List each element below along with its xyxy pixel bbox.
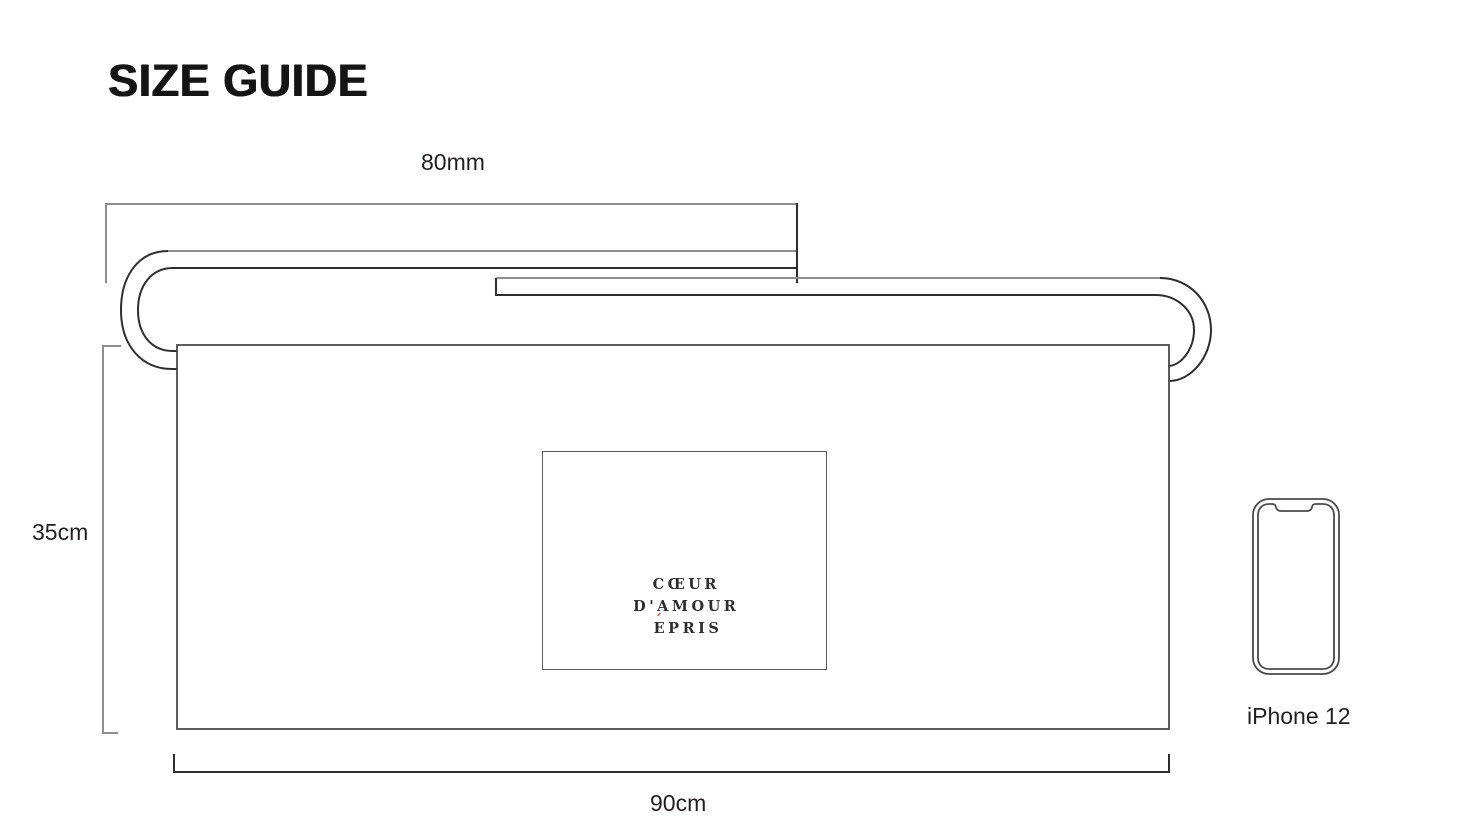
size-guide-canvas: SIZE GUIDE (0, 0, 1458, 825)
size-guide-drawing (0, 0, 1458, 825)
iphone-outline-icon (1253, 499, 1339, 674)
dimension-label-80mm: 80mm (421, 149, 485, 176)
iphone-body-outline (1253, 499, 1339, 674)
brand-label-box: CŒUR D'AMOUR ´EPRIS (542, 451, 827, 670)
dimension-bracket-80mm (106, 203, 797, 283)
iphone-screen-notch-outline (1258, 504, 1334, 669)
brand-label-line-3: ´EPRIS (647, 618, 723, 640)
brand-label-line-3-rest: PRIS (668, 620, 722, 637)
dimension-label-90cm: 90cm (650, 790, 706, 817)
bracket-80mm-line (106, 204, 796, 283)
strap-right-curve-outer (1160, 278, 1211, 381)
accented-letter: ´E (650, 618, 668, 640)
brand-label-line-1: CŒUR (649, 574, 720, 596)
bracket-90cm-line (174, 754, 1169, 772)
iphone-reference-label: iPhone 12 (1247, 703, 1351, 730)
strap-left-curve-inner (138, 268, 178, 351)
dimension-bracket-35cm (103, 346, 121, 733)
strap-band-b-bottom-edge (496, 278, 1155, 295)
bracket-35cm-line (103, 346, 121, 733)
dimension-label-35cm: 35cm (32, 519, 88, 546)
strap-right-curve-inner (1155, 295, 1194, 366)
strap-handle-outline (121, 251, 1211, 381)
red-accent-mark: ´ (651, 609, 662, 631)
dimension-bracket-90cm (174, 754, 1169, 772)
brand-label-line-2: D'AMOUR (630, 596, 740, 618)
